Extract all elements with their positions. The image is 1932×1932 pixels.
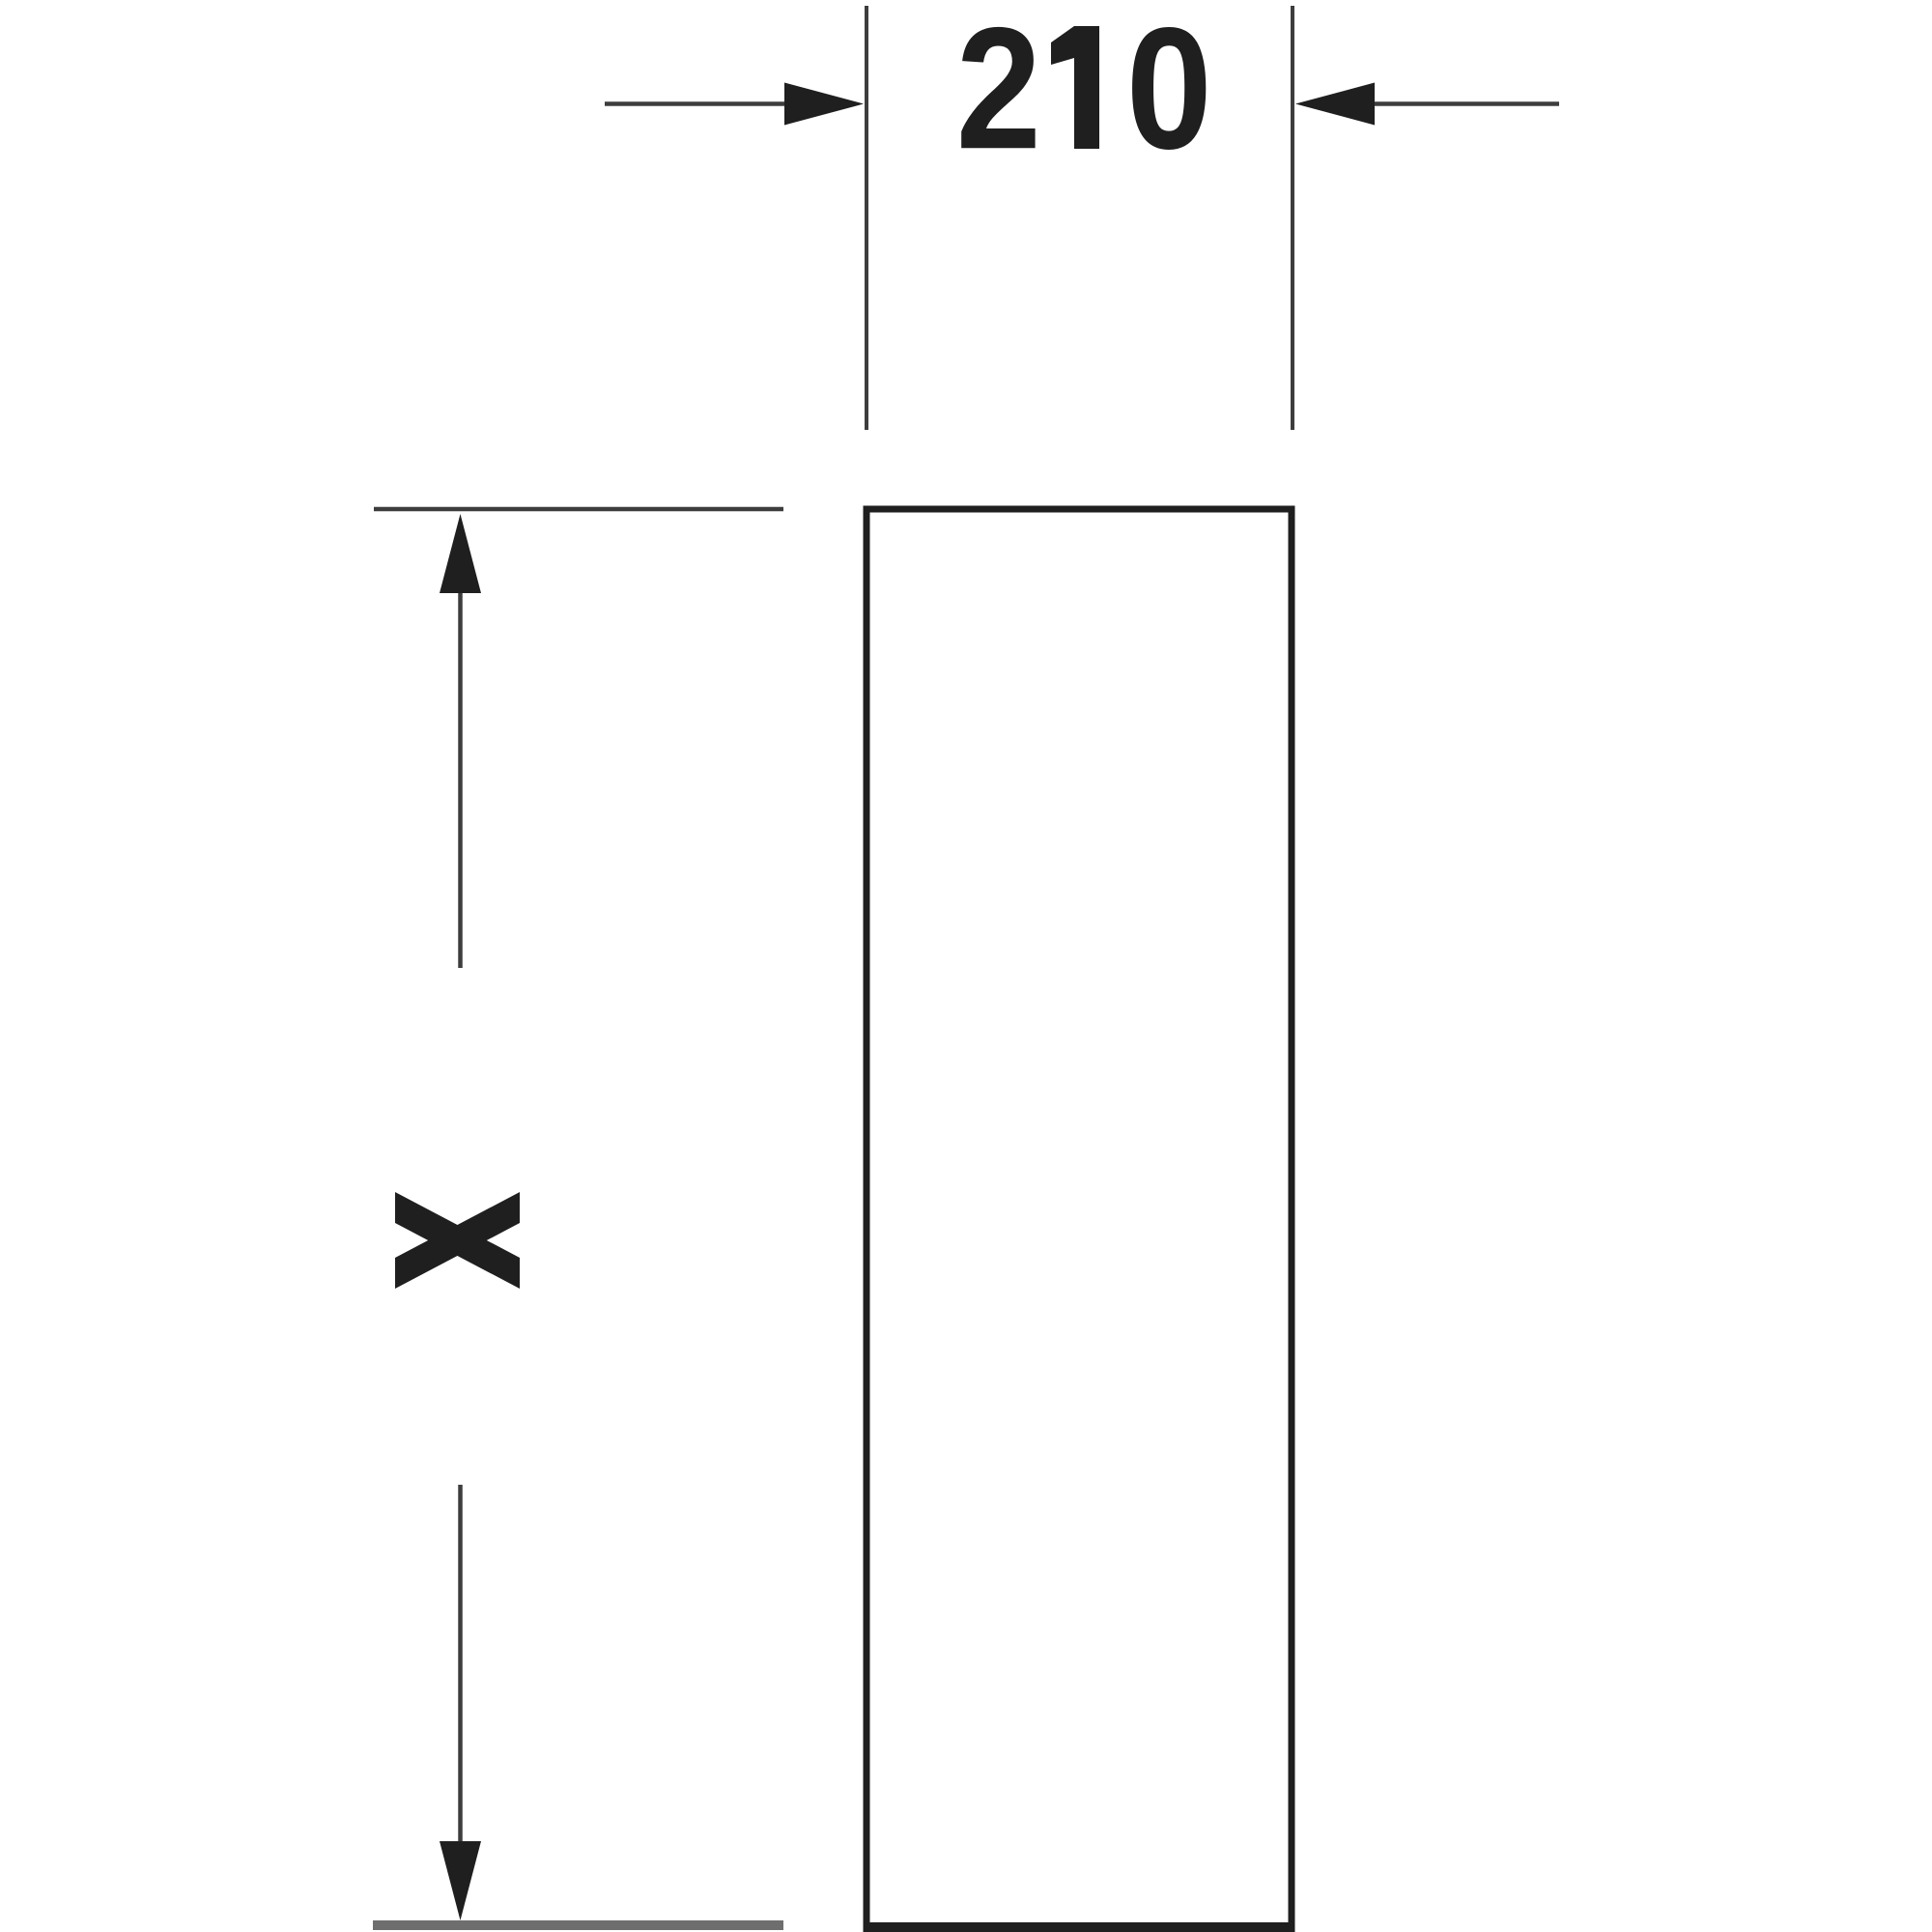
svg-text:0: 0 xyxy=(1126,0,1212,185)
svg-text:2: 2 xyxy=(956,0,1041,185)
